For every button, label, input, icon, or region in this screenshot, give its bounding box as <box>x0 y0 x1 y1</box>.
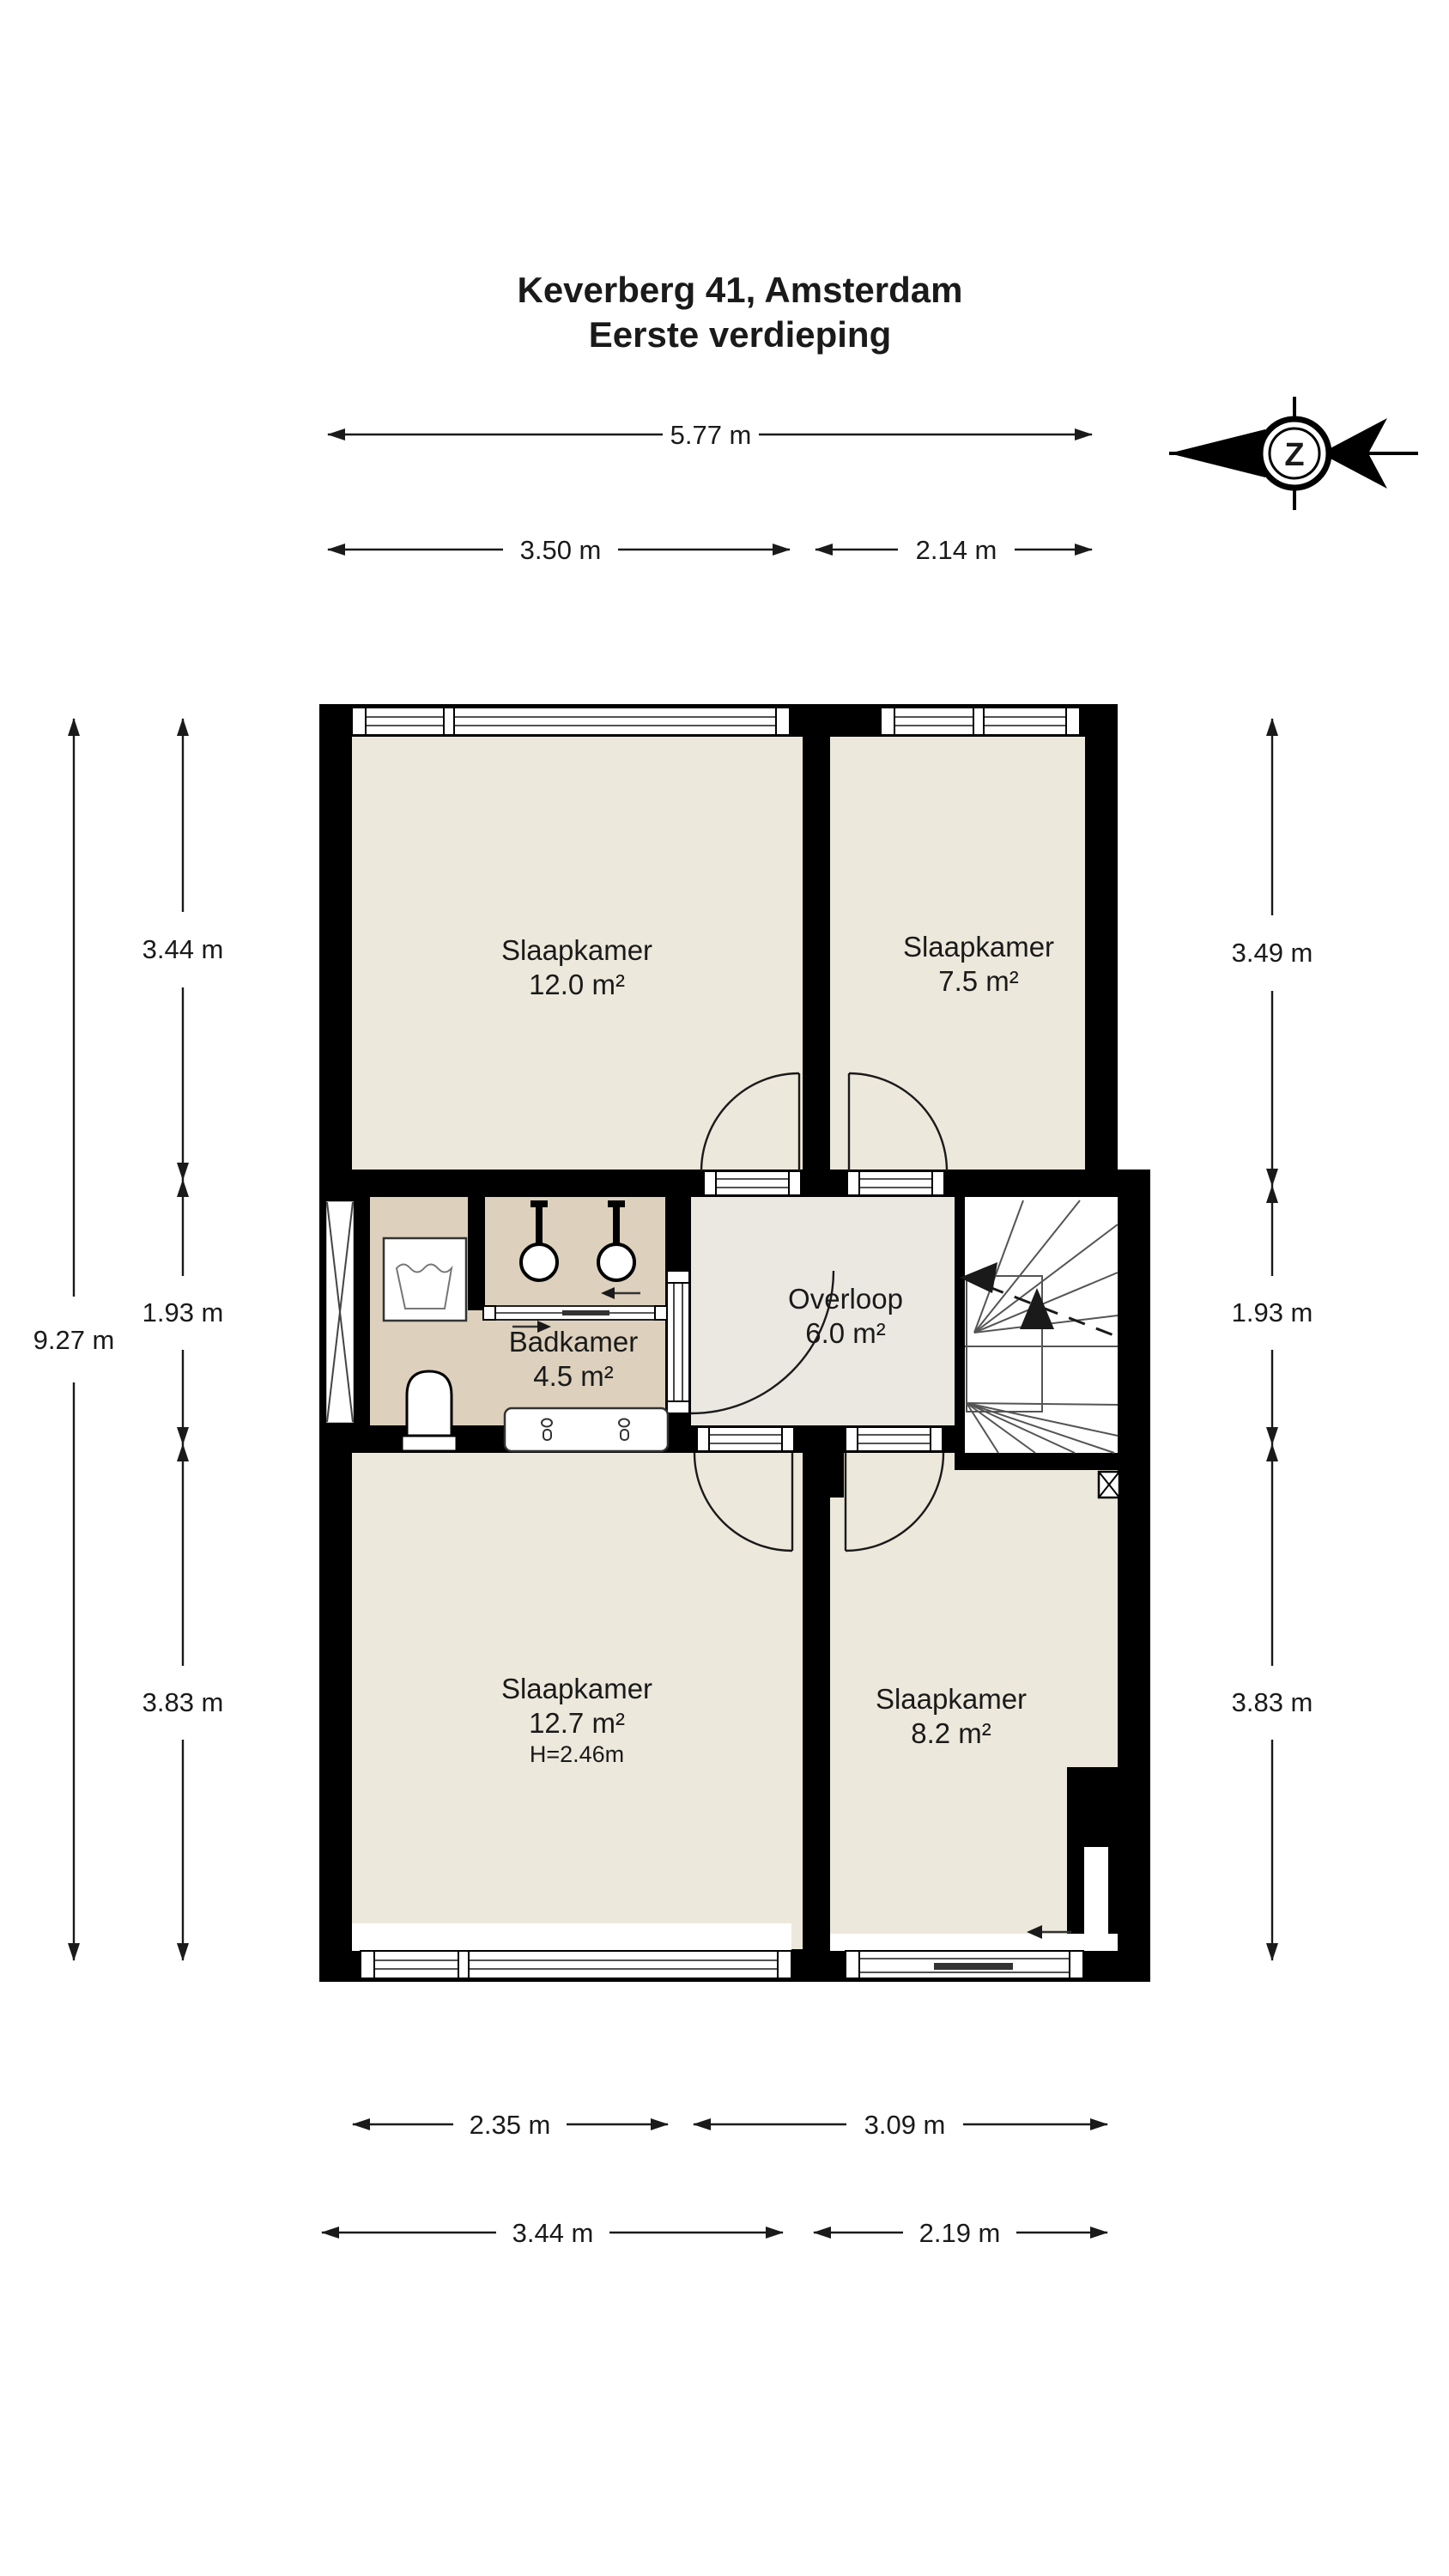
door-opening-badkamer <box>667 1271 689 1413</box>
label-overloop-area: 6.0 m² <box>805 1317 886 1349</box>
dim-label: 3.09 m <box>864 2110 946 2140</box>
label-slaapkamer-7-5-area: 7.5 m² <box>938 965 1019 997</box>
label-slaapkamer-12-7-name: Slaapkamer <box>501 1673 652 1704</box>
dim-label: 1.93 m <box>142 1297 224 1327</box>
door-opening-slaapkamer-12-7 <box>697 1427 794 1451</box>
window-sill <box>352 1923 791 1951</box>
label-slaapkamer-12-7-area: 12.7 m² <box>529 1707 625 1739</box>
dim-label: 3.83 m <box>142 1687 224 1717</box>
dim-label: 2.35 m <box>470 2110 551 2140</box>
floor-plan: Slaapkamer 12.0 m² Slaapkamer 7.5 m² Bad… <box>319 704 1150 1982</box>
door-opening-slaapkamer-12-0 <box>704 1171 801 1195</box>
dim-label: 3.49 m <box>1232 938 1313 968</box>
label-slaapkamer-8-2-name: Slaapkamer <box>876 1683 1027 1715</box>
washing-machine-icon <box>384 1238 466 1321</box>
window-bottom-left <box>352 1923 791 1978</box>
door-opening-slaapkamer-7-5 <box>847 1171 944 1195</box>
dim-label: 3.44 m <box>142 934 224 964</box>
sliding-door-sill <box>830 1934 1118 1951</box>
label-slaapkamer-8-2-area: 8.2 m² <box>911 1717 991 1749</box>
page-title-line2: Eerste verdieping <box>589 314 891 355</box>
shaft-box <box>1099 1472 1119 1498</box>
page-title-line1: Keverberg 41, Amsterdam <box>517 270 962 310</box>
toilet-icon <box>402 1371 457 1451</box>
wall-right-upper <box>1085 704 1118 1170</box>
label-badkamer-area: 4.5 m² <box>533 1360 614 1392</box>
label-slaapkamer-7-5-name: Slaapkamer <box>903 931 1054 963</box>
dim-label: 2.19 m <box>919 2218 1001 2248</box>
wall-between-top-bedrooms <box>803 737 830 1170</box>
dim-label: 5.77 m <box>670 420 752 450</box>
compass-letter: Z <box>1284 437 1304 473</box>
wall-shower-divider <box>468 1197 485 1310</box>
dim-label: 1.93 m <box>1232 1297 1313 1327</box>
label-badkamer-name: Badkamer <box>509 1326 638 1358</box>
shower-glass-partition <box>483 1306 667 1320</box>
wall-right-lower <box>1118 1170 1150 1982</box>
washbasin-vanity-icon <box>505 1408 668 1451</box>
label-slaapkamer-12-0-area: 12.0 m² <box>529 969 625 1000</box>
closet-shaft <box>325 1200 355 1424</box>
dim-label: 9.27 m <box>33 1325 115 1355</box>
label-overloop-name: Overloop <box>788 1283 903 1315</box>
dim-label: 2.14 m <box>916 535 997 565</box>
floorplan-svg: Keverberg 41, Amsterdam Eerste verdiepin… <box>0 0 1449 2576</box>
dim-label: 3.50 m <box>520 535 602 565</box>
window-top-right <box>881 708 1080 735</box>
window-top-left <box>352 708 790 735</box>
wall-between-bottom-bedrooms <box>803 1453 830 1949</box>
wall-stub <box>803 1453 844 1498</box>
dim-label: 3.44 m <box>512 2218 594 2248</box>
door-opening-slaapkamer-8-2 <box>846 1427 943 1451</box>
sliding-panel <box>934 1963 1013 1970</box>
label-slaapkamer-12-7-height: H=2.46m <box>530 1741 624 1767</box>
dim-label: 3.83 m <box>1232 1687 1313 1717</box>
wall-stairs-left <box>955 1197 965 1453</box>
label-slaapkamer-12-0-name: Slaapkamer <box>501 934 652 966</box>
wall-stairs-bottom <box>955 1453 1150 1470</box>
floorplan-page: Keverberg 41, Amsterdam Eerste verdiepin… <box>0 0 1449 2576</box>
